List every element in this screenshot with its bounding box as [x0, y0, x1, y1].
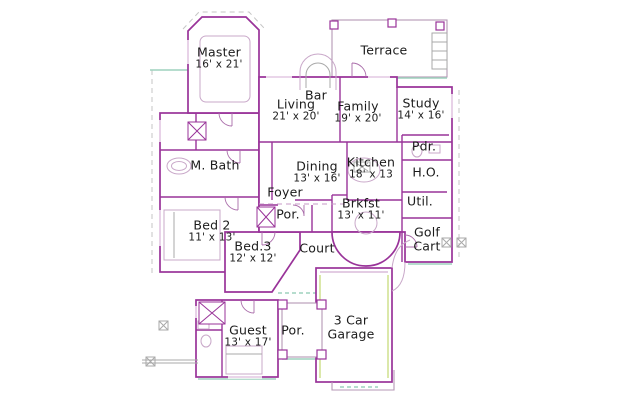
room-label-terrace: Terrace	[361, 43, 408, 57]
room-name: Brkfst	[342, 196, 380, 211]
room-dims: 12' x 12'	[229, 253, 276, 264]
room-name: Cart	[413, 239, 440, 253]
room-name: Garage	[328, 327, 375, 341]
room-dims: 21' x 20'	[272, 111, 319, 122]
room-label-living: Living21' x 20'	[272, 98, 319, 123]
room-name: Pdr.	[412, 138, 436, 153]
room-dims: 13' x 16'	[293, 173, 340, 184]
room-label-pdr: Pdr.	[412, 139, 436, 153]
room-dims: 14' x 16'	[397, 110, 444, 121]
floor-plan-canvas: Master16' x 21' Terrace Bar Living21' x …	[0, 0, 620, 415]
room-name: 3 Car	[334, 313, 368, 328]
room-name: Terrace	[361, 42, 408, 57]
room-label-master: Master16' x 21'	[195, 46, 242, 71]
room-name: Guest	[229, 323, 267, 338]
room-label-family: Family19' x 20'	[334, 100, 381, 125]
room-label-por-front: Por.	[276, 207, 300, 221]
room-label-brkfst: Brkfst13' x 11'	[337, 197, 384, 222]
room-label-guest: Guest13' x 17'	[224, 324, 271, 349]
room-name: Por.	[276, 206, 300, 221]
room-label-m-bath: M. Bath	[190, 158, 239, 172]
floor-plan-drawing	[0, 0, 620, 415]
room-dims: 13' x 11'	[337, 210, 384, 221]
room-label-foyer: Foyer	[267, 185, 303, 199]
room-name: H.O.	[412, 164, 439, 179]
room-name: Master	[197, 45, 241, 60]
room-name: Dining	[296, 159, 338, 174]
room-name: Bed 2	[193, 218, 230, 233]
room-label-por-side: Por.	[281, 323, 305, 337]
room-label-ho: H.O.	[412, 165, 439, 179]
fireplace-icon	[432, 33, 447, 69]
room-label-garage: 3 CarGarage	[328, 314, 375, 341]
room-label-bed3: Bed.312' x 12'	[229, 240, 276, 265]
room-name: Court	[299, 240, 334, 255]
room-name: Util.	[407, 193, 433, 208]
room-name: Golf	[414, 225, 440, 240]
room-name: Study	[402, 96, 439, 111]
room-label-court: Court	[299, 241, 334, 255]
room-dims: 19' x 20'	[334, 113, 381, 124]
room-name: Bed.3	[234, 239, 271, 254]
room-dims: 16' x 21'	[195, 59, 242, 70]
room-name: M. Bath	[190, 157, 239, 172]
room-label-util: Util.	[407, 194, 433, 208]
room-name: Kitchen	[347, 155, 395, 170]
room-name: Family	[337, 99, 378, 114]
room-label-dining: Dining13' x 16'	[293, 160, 340, 185]
room-label-golf-cart: GolfCart	[413, 226, 440, 253]
room-name: Foyer	[267, 184, 303, 199]
room-name: Living	[277, 97, 315, 112]
room-name: Por.	[281, 322, 305, 337]
room-label-study: Study14' x 16'	[397, 97, 444, 122]
room-dims: 13' x 17'	[224, 337, 271, 348]
room-label-kitchen: Kitchen18' x 13	[347, 156, 395, 181]
room-dims: 18' x 13	[347, 169, 395, 180]
